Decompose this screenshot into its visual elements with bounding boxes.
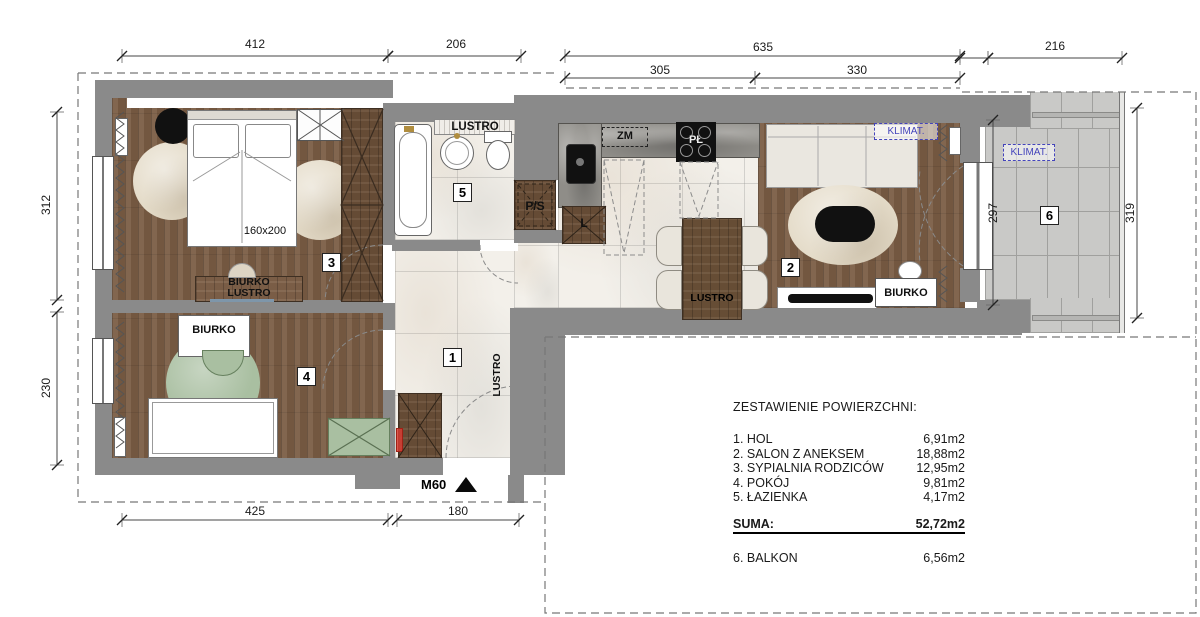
legend-label: 6. BALKON <box>733 551 798 566</box>
legend-row-pokoj: 4. POKÓJ 9,81m2 <box>733 476 965 491</box>
dining-chair-4 <box>742 270 768 310</box>
legend-value: 18,88m2 <box>916 447 965 462</box>
legend-sum-value: 52,72m2 <box>916 517 965 532</box>
wall-entry-left <box>395 458 443 475</box>
door-gap-bedroom <box>383 245 395 303</box>
dishwasher-label: ZM <box>602 130 648 142</box>
wall-bottom-kitchen-salon <box>510 308 1022 335</box>
bathroom-sink-faucet <box>454 133 460 139</box>
legend-row-balkon: 6. BALKON 6,56m2 <box>733 551 965 566</box>
bathroom-mirror-label: LUSTRO <box>440 121 510 133</box>
wall-salon-right-upper <box>960 123 980 163</box>
floor-plan: 1 2 3 4 5 6 LUSTRO BIURKO LUSTRO 160x200… <box>0 0 1200 617</box>
floor-balcony-top <box>1030 92 1122 129</box>
klimat-salon-label: KLIMAT. <box>874 123 938 140</box>
legend-label: 1. HOL <box>733 432 773 447</box>
door-gap-bathroom <box>480 240 518 251</box>
kitchen-sink-faucet <box>576 158 584 166</box>
kids-desk-label: BIURKO <box>178 324 250 336</box>
legend-label: 3. SYPIALNIA RODZICÓW <box>733 461 884 476</box>
bedroom-mirror-label: LUSTRO <box>197 288 301 299</box>
legend-row-salon: 2. SALON Z ANEKSEM 18,88m2 <box>733 447 965 462</box>
wall-ps-niche-top <box>514 95 562 180</box>
legend-value: 12,95m2 <box>916 461 965 476</box>
dining-table <box>682 218 742 320</box>
coffee-table <box>815 206 875 242</box>
bedroom-top-niche <box>127 98 385 108</box>
bed-headboard <box>188 111 296 120</box>
cooktop-label: PŁ <box>676 134 716 146</box>
legend-row-lazienka: 5. ŁAZIENKA 4,17m2 <box>733 490 965 505</box>
room-number-bedroom: 3 <box>322 253 341 272</box>
legend-row-suma: SUMA: 52,72m2 <box>733 517 965 535</box>
dining-mirror-label: LUSTRO <box>682 292 742 304</box>
entry-marker: M60 <box>421 477 477 492</box>
dim-top-balcony: 216 <box>1030 39 1080 53</box>
dim-balcony-inner: 297 <box>986 188 1000 238</box>
radiator-bedroom <box>115 118 128 156</box>
dining-chair-1 <box>656 226 682 266</box>
balcony-rail-top <box>1032 112 1120 118</box>
wardrobe-top <box>297 109 344 141</box>
kids-bed <box>148 398 278 458</box>
bed-pillow-left <box>193 124 239 158</box>
wall-top-bedroom <box>95 80 393 98</box>
legend-value: 9,81m2 <box>923 476 965 491</box>
wall-kids-room-bottom <box>95 458 395 475</box>
wall-left <box>95 95 112 475</box>
salon-desk-label: BIURKO <box>875 287 937 299</box>
bed-size-label: 160x200 <box>238 225 292 237</box>
wall-balcony-pier-top <box>977 95 1030 127</box>
dim-left-bedroom: 312 <box>39 180 53 230</box>
hall-cabinet <box>398 393 442 458</box>
room-number-kids-room: 4 <box>297 367 316 386</box>
dim-balcony-outer: 319 <box>1123 188 1137 238</box>
legend-row-sypialnia: 3. SYPIALNIA RODZICÓW 12,95m2 <box>733 461 965 476</box>
tv <box>788 294 873 303</box>
room-number-hall: 1 <box>443 348 462 367</box>
ac-unit <box>949 127 961 155</box>
dim-top-bathroom: 206 <box>431 37 481 51</box>
legend-label: 2. SALON Z ANEKSEM <box>733 447 864 462</box>
wall-top-kitchen <box>558 95 982 123</box>
room-number-balcony: 6 <box>1040 206 1059 225</box>
wall-entry-right-step <box>508 475 524 503</box>
toilet-bowl <box>486 140 510 170</box>
wall-ps-niche-bottom <box>514 230 562 243</box>
fridge-label: L <box>562 216 606 230</box>
legend-sum-label: SUMA: <box>733 517 774 532</box>
kids-ottoman <box>328 418 390 456</box>
dim-top-salon: 330 <box>832 63 882 77</box>
wall-salon-right-lower <box>960 268 980 302</box>
room-number-salon: 2 <box>781 258 800 277</box>
legend-value: 6,56m2 <box>923 551 965 566</box>
dim-top-kitchen: 305 <box>635 63 685 77</box>
floor-corridor <box>514 243 562 308</box>
hall-mirror-label: LUSTRO <box>491 344 503 406</box>
dim-bottom-kids-room: 425 <box>230 504 280 518</box>
wall-entry-step <box>355 475 400 489</box>
dim-top-total: 635 <box>738 40 788 54</box>
window-kids-room <box>92 338 114 404</box>
bathtub-faucet <box>404 126 414 132</box>
dining-chair-3 <box>742 226 768 266</box>
entry-direction-icon <box>455 477 477 492</box>
bedroom-nightstand <box>155 108 191 144</box>
legend-label: 5. ŁAZIENKA <box>733 490 807 505</box>
bathtub-inner <box>399 132 427 228</box>
dim-bottom-entry: 180 <box>433 504 483 518</box>
dim-left-kids-room: 230 <box>39 363 53 413</box>
legend-title: ZESTAWIENIE POWIERZCHNI: <box>733 400 965 414</box>
legend-value: 4,17m2 <box>923 490 965 505</box>
dim-top-bedroom: 412 <box>230 37 280 51</box>
legend-label: 4. POKÓJ <box>733 476 789 491</box>
hall-cabinet-red-tag <box>396 428 403 452</box>
room-number-bathroom: 5 <box>453 183 472 202</box>
bathroom-sink-inner <box>445 141 469 165</box>
legend-row-hol: 1. HOL 6,91m2 <box>733 432 965 447</box>
area-summary-table: ZESTAWIENIE POWIERZCHNI: 1. HOL 6,91m2 2… <box>733 400 965 566</box>
washer-dryer-label: P/S <box>514 199 556 213</box>
balcony-rail-bottom <box>1032 315 1120 321</box>
entry-door-label: M60 <box>421 477 446 492</box>
bedroom-mirror <box>210 299 274 302</box>
legend-value: 6,91m2 <box>923 432 965 447</box>
dining-chair-2 <box>656 270 682 310</box>
wardrobe-bedroom <box>341 108 383 302</box>
door-gap-kids-room <box>383 330 395 390</box>
klimat-balcony-label: KLIMAT. <box>1003 144 1055 161</box>
wall-balcony-pier-bottom <box>977 300 1030 333</box>
bed-pillow-right <box>245 124 291 158</box>
window-bedroom <box>92 156 114 270</box>
radiator-kids-room <box>114 417 126 457</box>
